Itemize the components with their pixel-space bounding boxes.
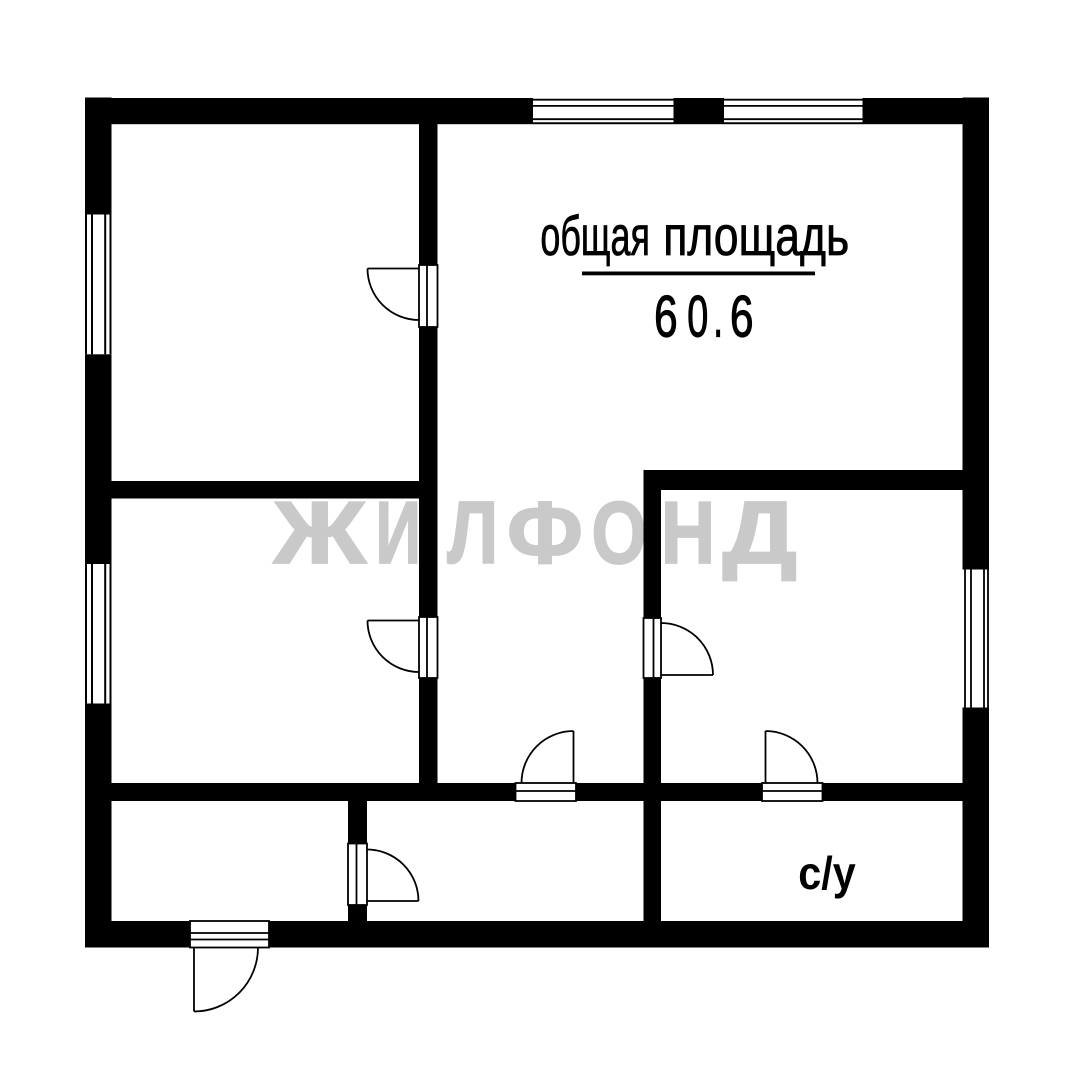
svg-text:О: О: [592, 483, 647, 582]
svg-text:Л: Л: [447, 483, 498, 582]
svg-text:Ф: Ф: [507, 483, 583, 582]
svg-text:Н: Н: [661, 483, 716, 582]
svg-text:6: 6: [730, 284, 754, 349]
svg-text:6: 6: [654, 284, 678, 349]
svg-text:общая: общая: [540, 204, 650, 267]
svg-text:Д: Д: [723, 483, 798, 582]
svg-text:.: .: [713, 284, 723, 349]
svg-text:площадь: площадь: [663, 204, 849, 267]
svg-text:0: 0: [687, 284, 708, 349]
svg-text:с/у: с/у: [798, 847, 856, 899]
